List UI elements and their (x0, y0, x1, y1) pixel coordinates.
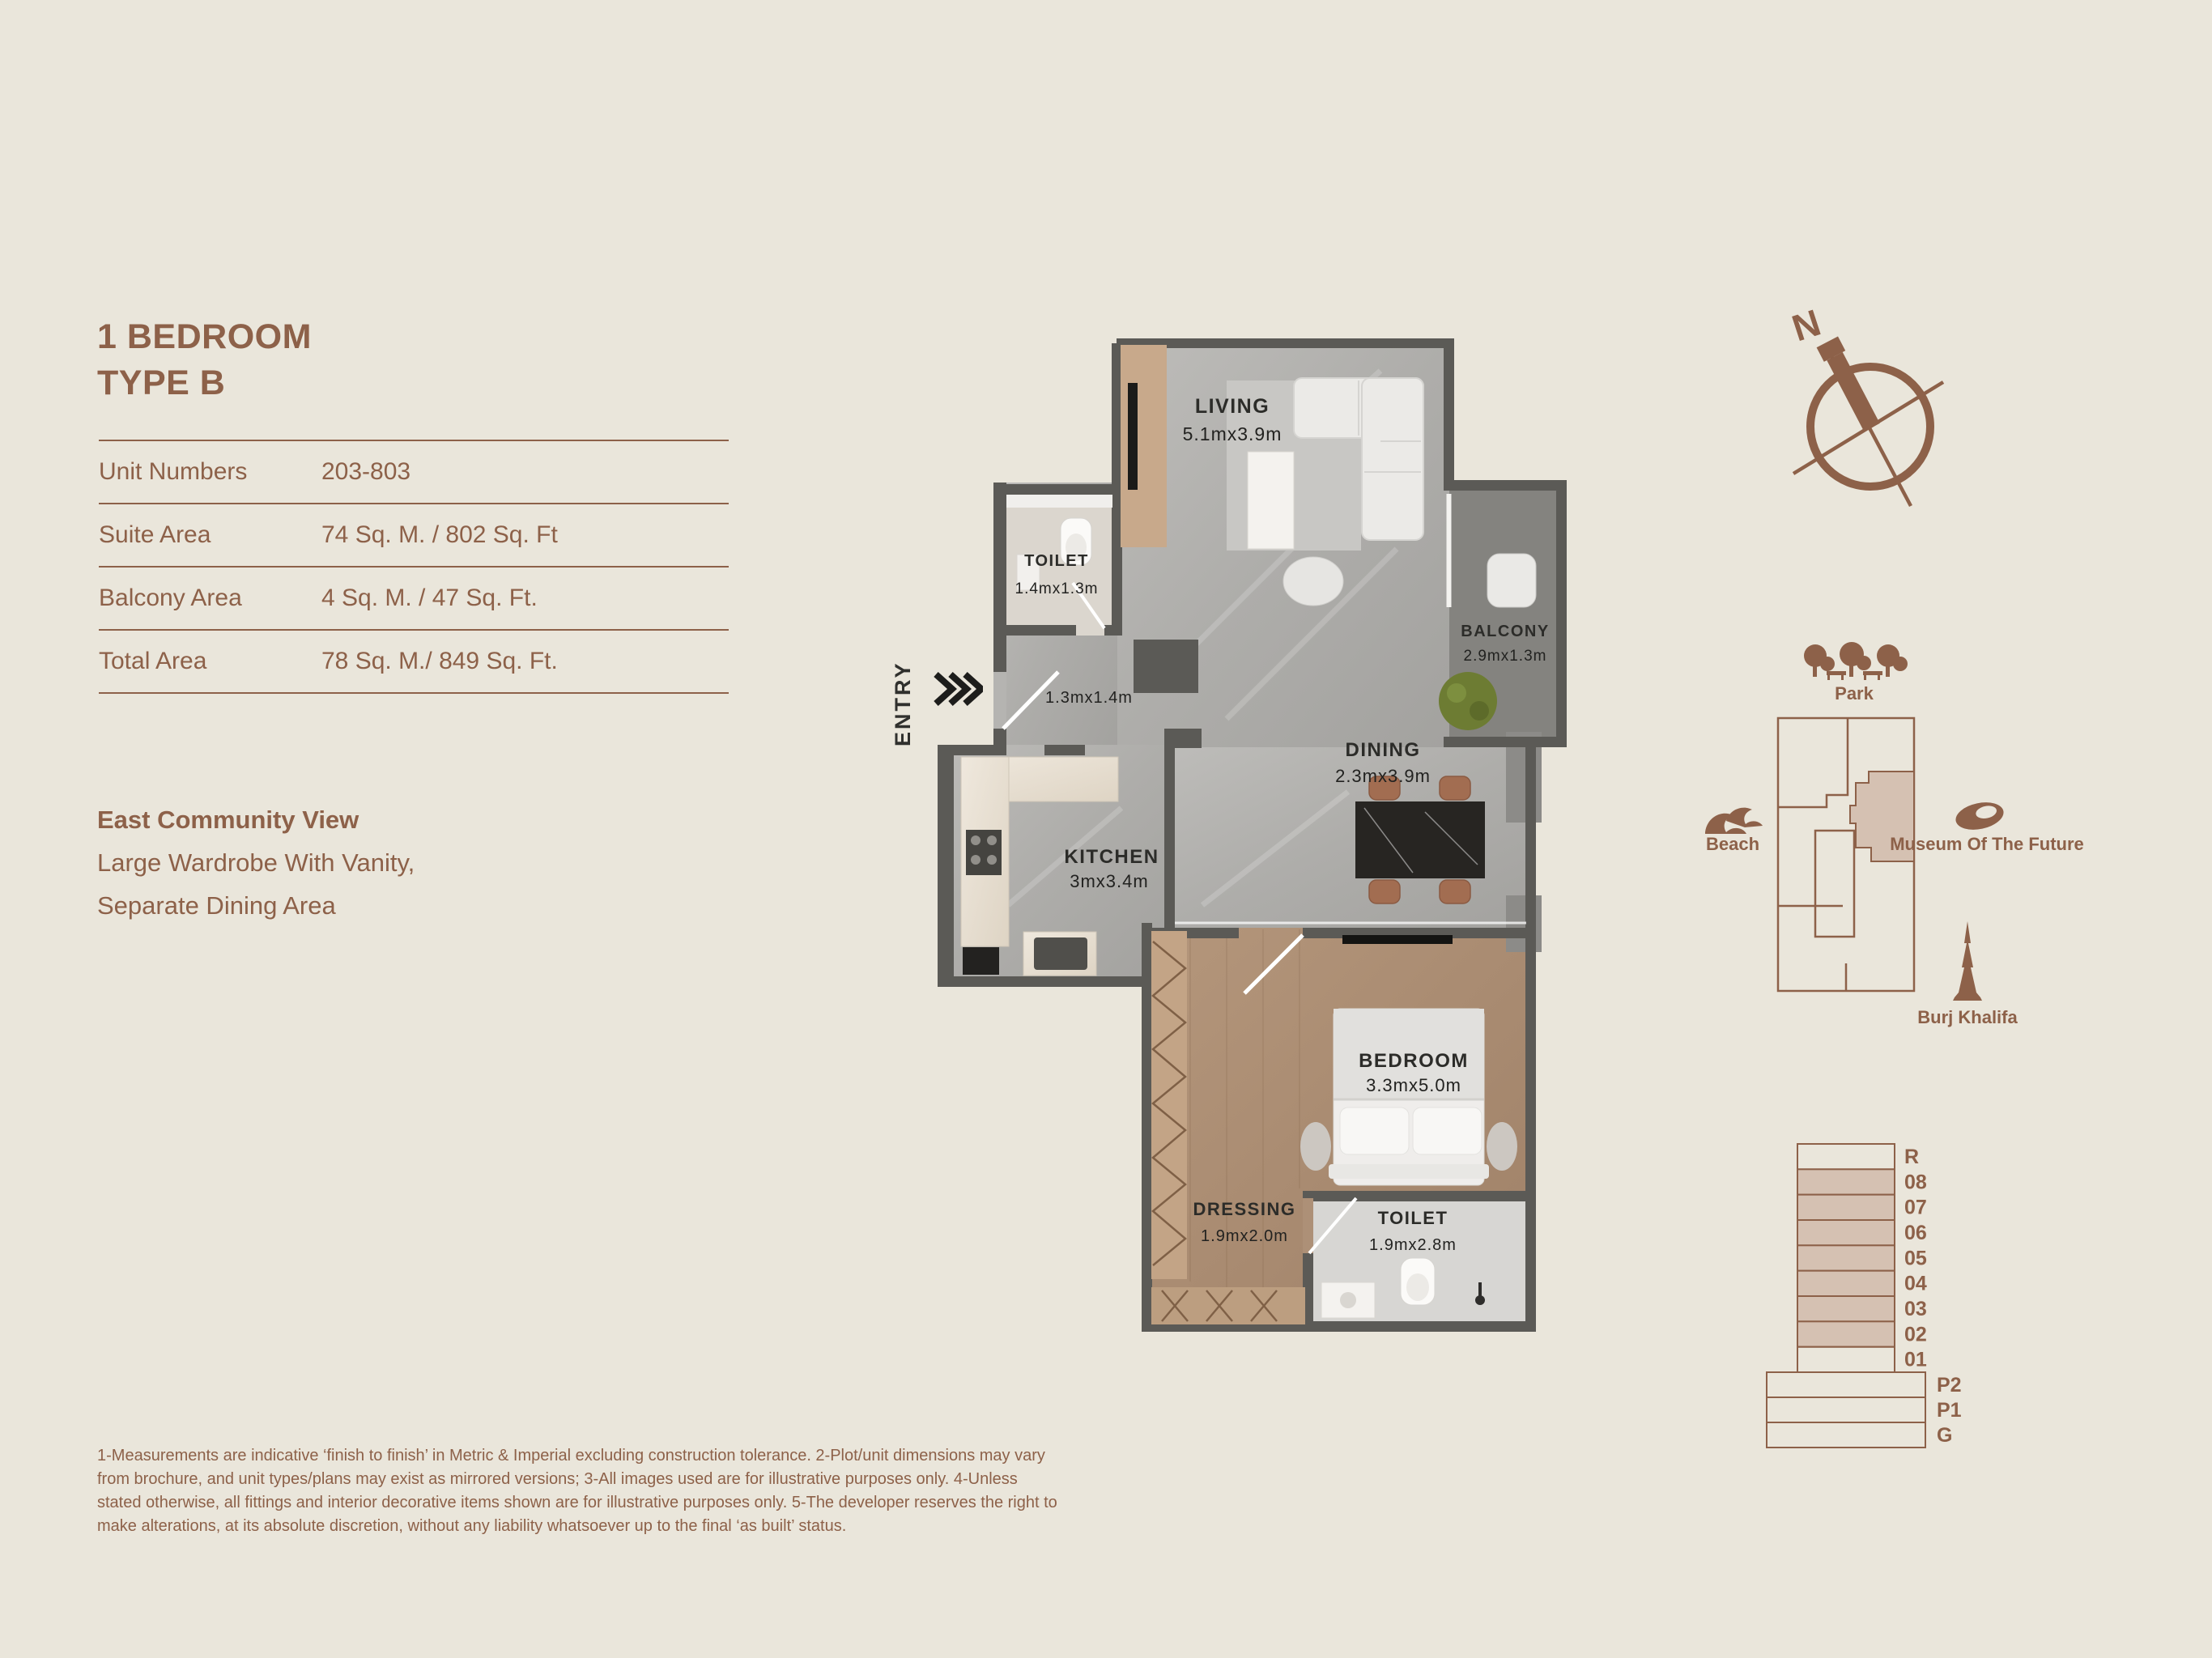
dressing-label: DRESSING (1193, 1199, 1296, 1219)
entry-label: ENTRY (891, 659, 915, 748)
floor-row-05 (1797, 1245, 1895, 1270)
plant (1439, 672, 1497, 730)
dining-label: DINING (1346, 739, 1421, 761)
tv (1128, 383, 1138, 490)
floor-plan: LIVING 5.1mx3.9m TOILET 1.4mx1.3m 1.3mx1… (923, 338, 1575, 1346)
dressing-dims: 1.9mx2.0m (1201, 1227, 1288, 1245)
feature-wardrobe: Large Wardrobe With Vanity, (97, 841, 415, 884)
title-line-2: TYPE B (97, 360, 312, 406)
museum-icon (1953, 798, 2006, 834)
row-label: Total Area (99, 648, 321, 675)
building-footprint (1778, 718, 1914, 991)
coffee-table (1248, 452, 1294, 549)
floor-label: 03 (1904, 1298, 1927, 1320)
kitchen-label: KITCHEN (1064, 846, 1159, 868)
floor-row-06 (1797, 1220, 1895, 1245)
bedroom-label: BEDROOM (1359, 1050, 1469, 1072)
kitchen-dims: 3mx3.4m (1070, 871, 1148, 891)
row-label: Suite Area (99, 521, 321, 549)
burj-khalifa-icon (1953, 921, 1982, 1001)
feature-list: East Community View Large Wardrobe With … (97, 798, 415, 927)
floor-row-03 (1797, 1296, 1895, 1321)
sink (1034, 937, 1087, 970)
living-dims: 5.1mx3.9m (1183, 423, 1283, 444)
floor-label: 02 (1904, 1323, 1927, 1346)
bedroom-tv (1342, 935, 1453, 944)
floor-label: 05 (1904, 1247, 1927, 1269)
site-map: Park Beach Museum Of The Future Burj Kha… (1668, 623, 2121, 1125)
floor-label: 07 (1904, 1197, 1927, 1219)
balcony-dims: 2.9mx1.3m (1464, 648, 1547, 665)
podium-label: P1 (1937, 1399, 1962, 1422)
toilet1-label: TOILET (1024, 552, 1089, 570)
row-label: Unit Numbers (99, 458, 321, 486)
feature-dining: Separate Dining Area (97, 884, 415, 927)
floor-row-07 (1797, 1195, 1895, 1220)
podium-label: G (1937, 1424, 1952, 1447)
floor-row-p2 (1767, 1372, 1925, 1397)
title-line-1: 1 BEDROOM (97, 314, 312, 360)
floor-label: R (1904, 1146, 1919, 1168)
page-title: 1 BEDROOM TYPE B (97, 314, 312, 406)
unit-info-table: Unit Numbers 203-803 Suite Area 74 Sq. M… (99, 440, 729, 694)
podium-label: P2 (1937, 1374, 1962, 1397)
dining-dims: 2.3mx3.9m (1335, 766, 1431, 786)
floor-label: 01 (1904, 1349, 1927, 1371)
park-label: Park (1835, 683, 1874, 704)
balcony-label: BALCONY (1461, 623, 1549, 640)
brochure-page: 1 BEDROOM TYPE B Unit Numbers 203-803 Su… (0, 0, 2212, 1658)
table-row: Total Area 78 Sq. M./ 849 Sq. Ft. (99, 629, 729, 694)
feature-view: East Community View (97, 798, 415, 841)
floor-row-02 (1797, 1321, 1895, 1346)
row-value: 203-803 (321, 458, 410, 486)
floor-row-r (1797, 1144, 1895, 1169)
floor-label: 08 (1904, 1171, 1927, 1193)
toilet2-dims: 1.9mx2.8m (1369, 1236, 1457, 1254)
row-value: 4 Sq. M. / 47 Sq. Ft. (321, 585, 538, 612)
table-row: Unit Numbers 203-803 (99, 440, 729, 503)
north-label: N (1787, 301, 1826, 350)
floor-row-p1 (1767, 1397, 1925, 1422)
beach-icon (1705, 808, 1763, 834)
tv-console (1121, 345, 1167, 547)
park-icon (1804, 642, 1908, 680)
floor-label: 04 (1904, 1273, 1927, 1295)
floor-row-01 (1797, 1347, 1895, 1372)
floor-label: 06 (1904, 1222, 1927, 1244)
column (1134, 640, 1198, 693)
row-value: 78 Sq. M./ 849 Sq. Ft. (321, 648, 558, 675)
balcony-chair (1487, 554, 1536, 607)
disclaimer-text: 1-Measurements are indicative ‘finish to… (97, 1444, 1061, 1538)
toilet2-label: TOILET (1378, 1208, 1448, 1228)
living-label: LIVING (1195, 395, 1270, 418)
row-label: Balcony Area (99, 585, 321, 612)
floor-row-g (1767, 1422, 1925, 1448)
floor-row-08 (1797, 1169, 1895, 1194)
armchair (1283, 557, 1343, 606)
table-row: Balcony Area 4 Sq. M. / 47 Sq. Ft. (99, 566, 729, 629)
beach-label: Beach (1706, 834, 1759, 854)
museum-label: Museum Of The Future (1890, 834, 2084, 854)
dining-table (1355, 801, 1485, 878)
bedroom-dims: 3.3mx5.0m (1366, 1075, 1461, 1095)
stove (966, 830, 1002, 875)
floor-row-04 (1797, 1271, 1895, 1296)
hall-dims: 1.3mx1.4m (1045, 689, 1133, 707)
burj-label: Burj Khalifa (1917, 1007, 2018, 1027)
toilet1-dims: 1.4mx1.3m (1015, 580, 1099, 597)
floor-stack: R 08 07 06 05 04 03 02 01 P2 P1 G (1765, 1133, 1967, 1457)
table-row: Suite Area 74 Sq. M. / 802 Sq. Ft (99, 503, 729, 566)
row-value: 74 Sq. M. / 802 Sq. Ft (321, 521, 558, 549)
compass-icon: N (1773, 300, 1959, 518)
